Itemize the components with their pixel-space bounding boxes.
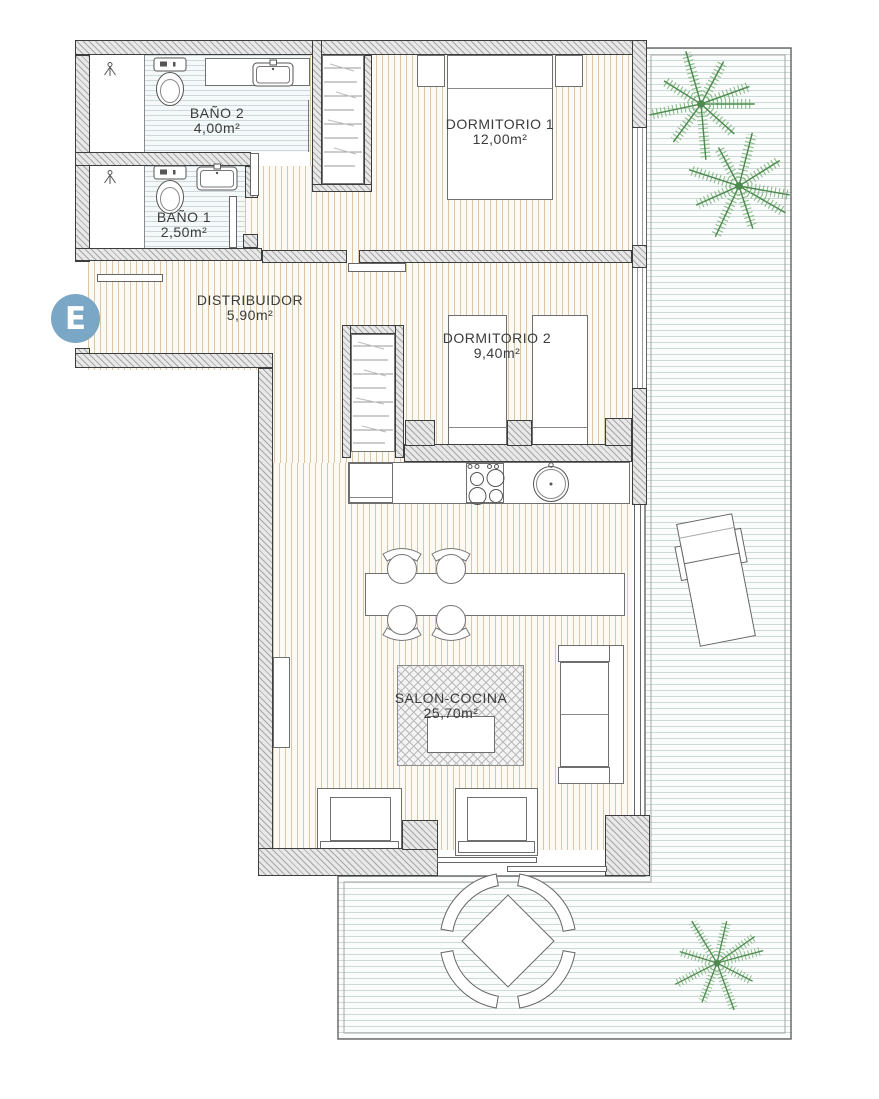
- entrance-letter: E: [65, 301, 86, 337]
- wall-bath-bottom: [75, 248, 262, 261]
- wardrobe2-wall-right: [395, 325, 404, 458]
- window-salon-right: [634, 505, 641, 815]
- sideboard: [273, 657, 290, 748]
- sofa: [556, 643, 625, 787]
- wardrobe1-wall-bottom: [312, 184, 372, 192]
- sliding-door-track1: [437, 857, 537, 863]
- nightstand-left: [417, 55, 445, 87]
- wardrobe1-wall-left: [312, 40, 322, 192]
- shower-bano2: [90, 55, 145, 152]
- wall-bath-separator: [75, 152, 251, 166]
- bano2-screen: [308, 100, 311, 152]
- wall-salon-bottom: [258, 848, 438, 876]
- label-distribuidor: DISTRIBUIDOR 5,90m²: [197, 293, 303, 323]
- sofa-arm-bottom: [558, 767, 610, 784]
- wall-top: [75, 40, 647, 55]
- nightstand-right: [555, 55, 583, 87]
- wall-dorm2-bottom: [404, 444, 632, 462]
- room-area: 9,40m²: [474, 345, 521, 361]
- room-name: DORMITORIO 1: [446, 116, 554, 132]
- wall-salon-left: [258, 368, 273, 876]
- wardrobe-dorm2: [351, 334, 395, 452]
- floor-plan: BAÑO 2 4,00m² BAÑO 1 2,50m² DORMITORIO 1…: [0, 0, 879, 1099]
- room-area: 5,90m²: [227, 307, 274, 323]
- wall-corridor-right: [359, 250, 632, 263]
- wall-right-2: [632, 245, 647, 268]
- wall-bano1-stub: [243, 234, 258, 248]
- sofa-arm-top: [558, 645, 610, 662]
- armchair-2: [455, 788, 538, 856]
- wall-right-3: [632, 388, 647, 505]
- sofa-back: [607, 645, 624, 784]
- label-salon-cocina: SALON-COCINA 25,70m²: [395, 691, 508, 721]
- wardrobe1-wall-right: [364, 55, 372, 192]
- label-dormitorio2: DORMITORIO 2 9,40m²: [443, 331, 551, 361]
- label-bano1: BAÑO 1 2,50m²: [157, 210, 211, 240]
- bano1-door-leaf: [229, 196, 237, 248]
- entrance-badge: E: [51, 294, 100, 343]
- wall-distribuidor-bottom: [75, 353, 273, 368]
- label-dormitorio1: DORMITORIO 1 12,00m²: [446, 117, 554, 147]
- dining-table: [365, 573, 625, 616]
- coffee-table: [427, 716, 495, 753]
- wall-dorm2-stub3: [605, 418, 632, 446]
- wall-right-1: [632, 40, 647, 128]
- room-name: BAÑO 1: [157, 209, 211, 225]
- room-name: DORMITORIO 2: [443, 330, 551, 346]
- wall-pier-right: [605, 815, 650, 876]
- wardrobe-dorm1: [322, 55, 364, 184]
- wall-corridor-left: [262, 250, 347, 263]
- room-area: 12,00m²: [473, 131, 528, 147]
- room-area: 25,70m²: [424, 705, 479, 721]
- wardrobe2-wall-left: [342, 325, 351, 458]
- entrance-door-leaf: [97, 274, 163, 282]
- shower-bano1: [90, 166, 145, 248]
- label-bano2: BAÑO 2 4,00m²: [190, 106, 244, 136]
- wall-dorm2-stub2: [507, 420, 532, 446]
- room-name: BAÑO 2: [190, 105, 244, 121]
- room-name: DISTRIBUIDOR: [197, 292, 303, 308]
- bano2-door-leaf: [250, 153, 259, 196]
- armchair-1: [317, 788, 402, 856]
- fridge: [349, 463, 393, 503]
- window-dormitorio1: [632, 128, 647, 245]
- room-name: SALON-COCINA: [395, 690, 508, 706]
- wall-pier-mid: [402, 820, 438, 850]
- cooktop-frame: [466, 463, 504, 503]
- room-area: 2,50m²: [161, 224, 208, 240]
- window-dormitorio2: [632, 268, 647, 388]
- bano2-counter: [205, 58, 310, 86]
- sofa-seat: [560, 662, 609, 767]
- sliding-door-track2: [507, 866, 607, 872]
- room-area: 4,00m²: [194, 120, 241, 136]
- dorm-door-leaf: [348, 263, 406, 272]
- wall-dorm2-stub1: [405, 420, 435, 446]
